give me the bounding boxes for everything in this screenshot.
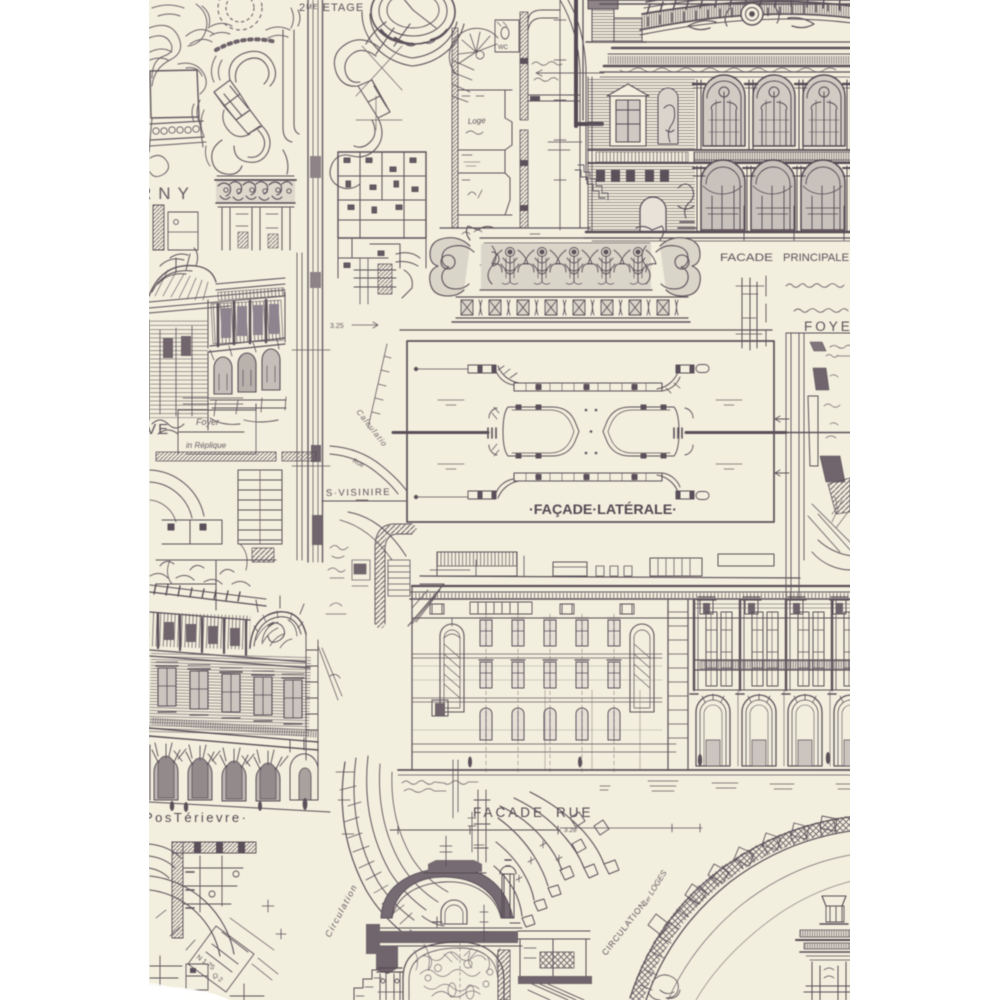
svg-text:FACADE: FACADE (473, 805, 545, 820)
svg-text:3.25: 3.25 (330, 323, 344, 330)
svg-text:Foyer: Foyer (196, 417, 220, 427)
svg-text:RUE: RUE (556, 805, 594, 820)
svg-text:in Réplique: in Réplique (186, 441, 227, 450)
svg-text:PRINCIPALE: PRINCIPALE (783, 252, 849, 264)
svg-text:WC: WC (498, 45, 509, 51)
svg-text:PosTérievre·: PosTérievre· (144, 810, 248, 825)
svg-text:FACADE: FACADE (720, 252, 773, 264)
svg-text:·FAÇADE·LATÉRALE·: ·FAÇADE·LATÉRALE· (529, 501, 677, 517)
svg-text:Loge: Loge (468, 116, 487, 126)
svg-text:S·VISINIRE: S·VISINIRE (326, 487, 391, 499)
